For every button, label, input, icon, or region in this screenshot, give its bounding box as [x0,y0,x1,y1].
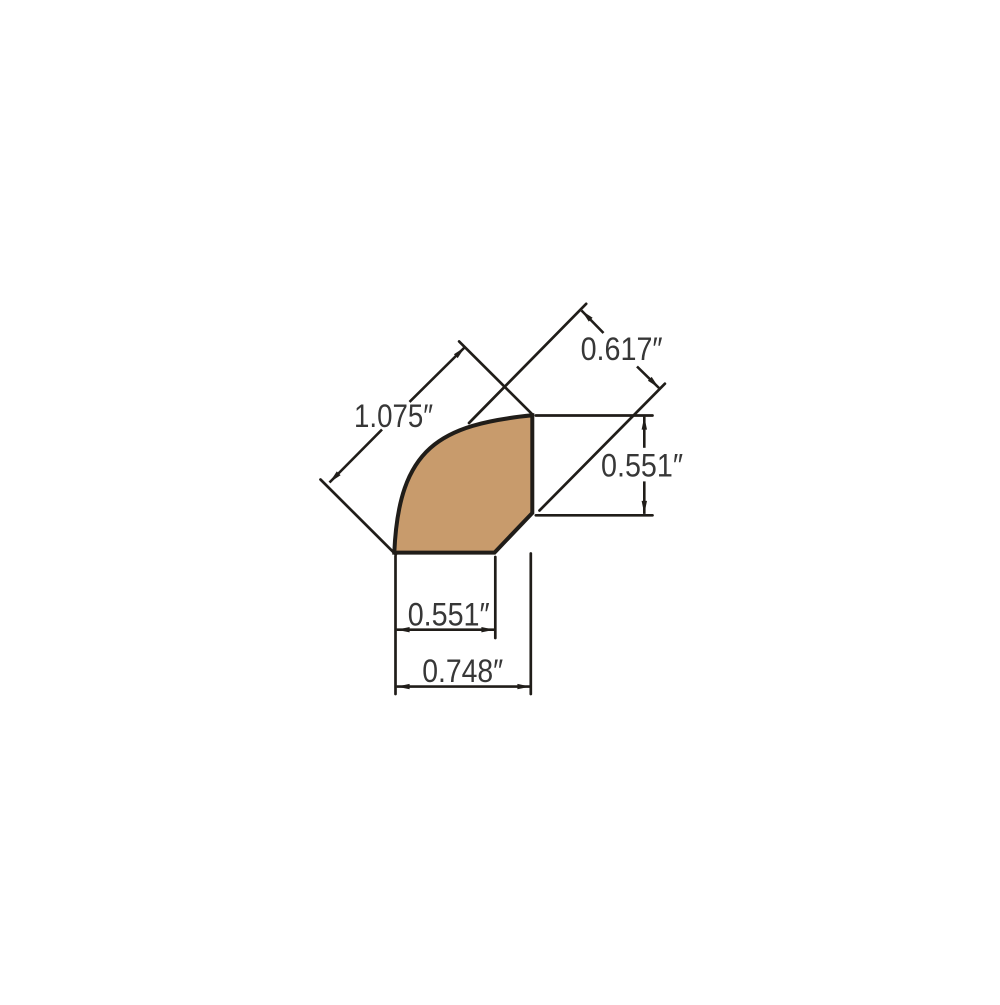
svg-text:0.748″: 0.748″ [422,653,503,689]
svg-text:1.075″: 1.075″ [354,398,433,434]
svg-text:0.551″: 0.551″ [601,447,683,483]
svg-text:0.617″: 0.617″ [581,331,663,367]
svg-text:0.551″: 0.551″ [408,596,490,632]
